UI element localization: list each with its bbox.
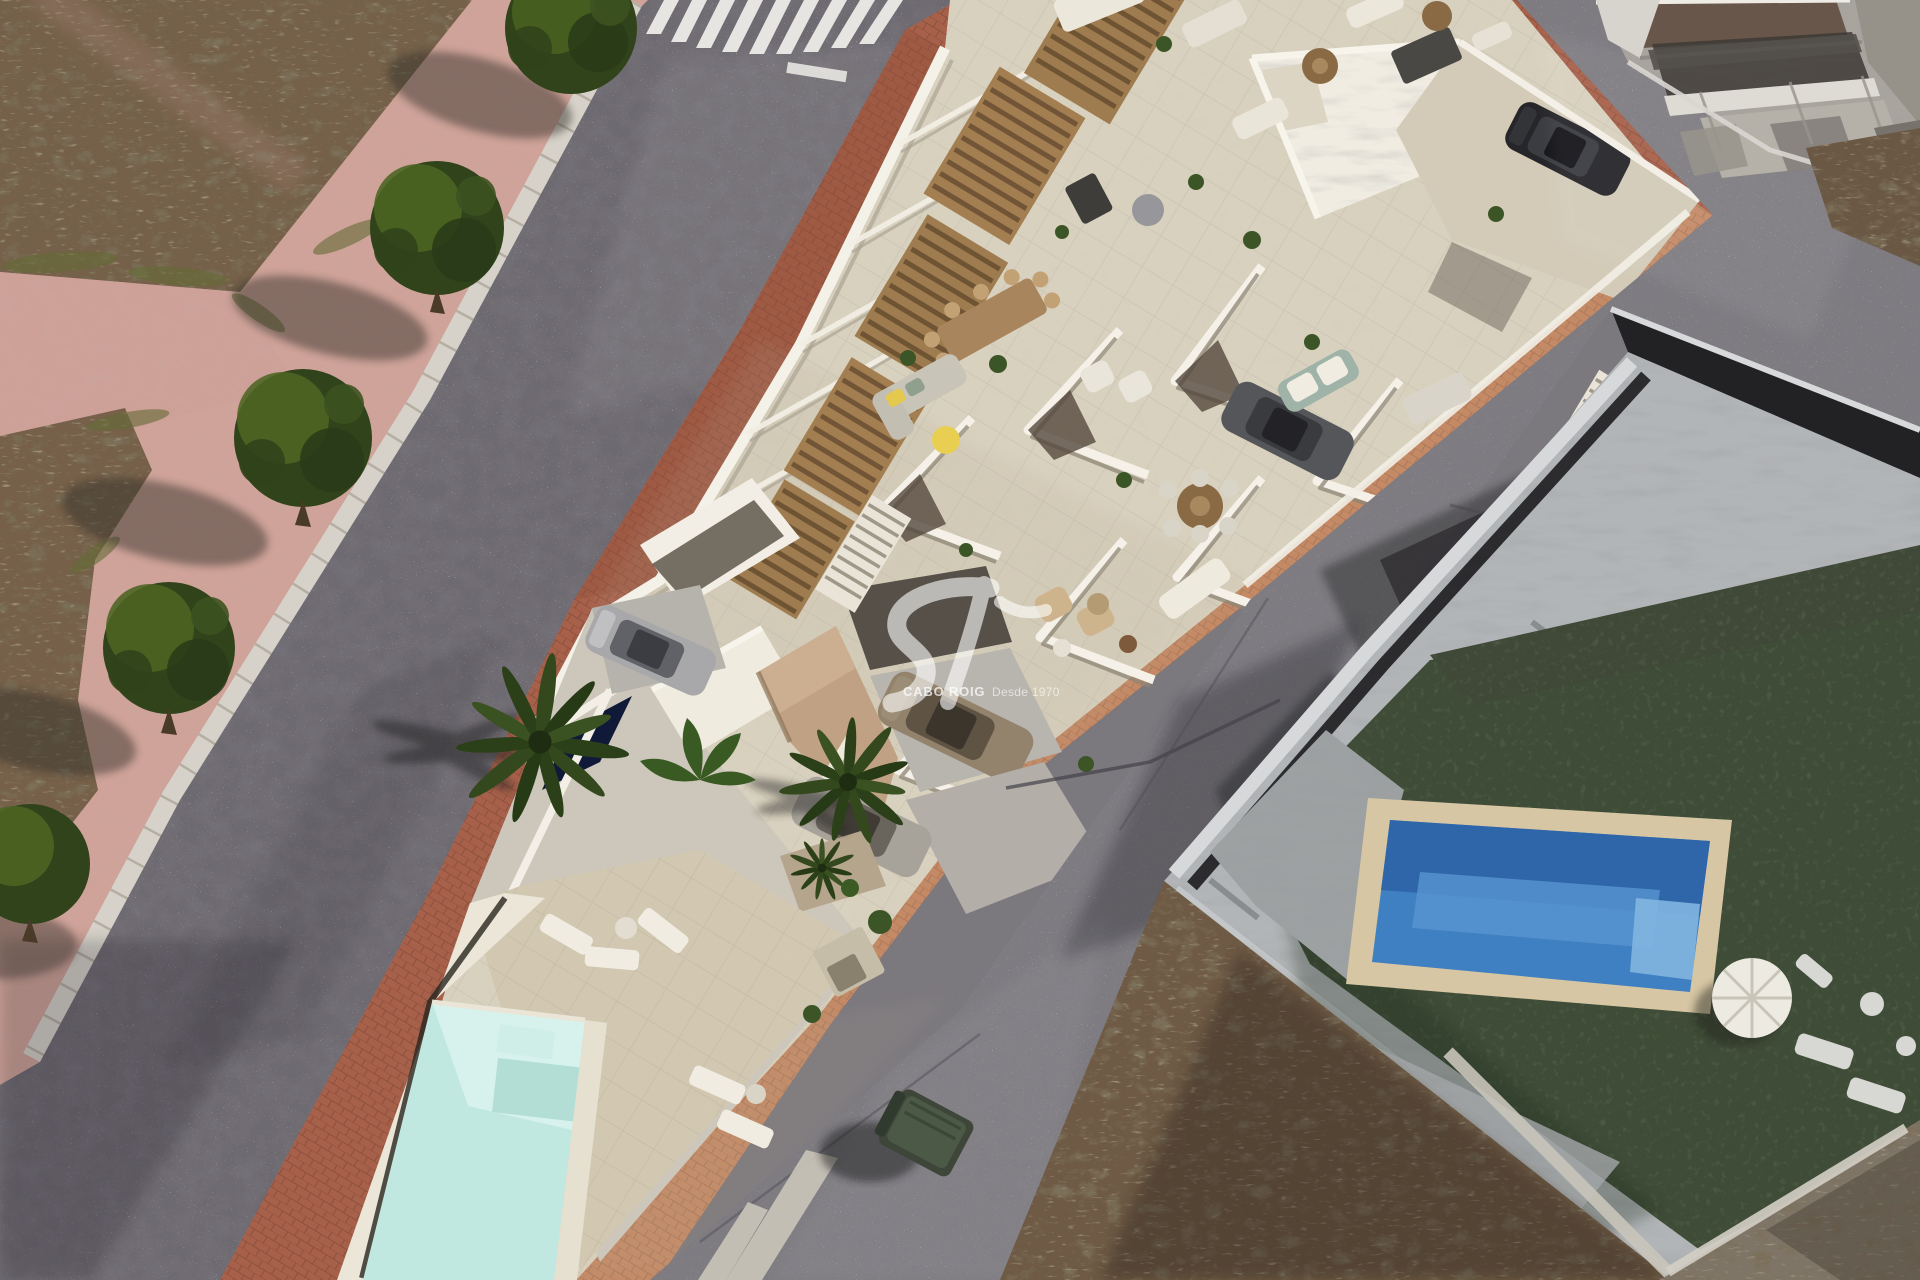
svg-text:CABO ROIG: CABO ROIG — [903, 684, 985, 699]
svg-text:Desde 1970: Desde 1970 — [992, 685, 1060, 699]
